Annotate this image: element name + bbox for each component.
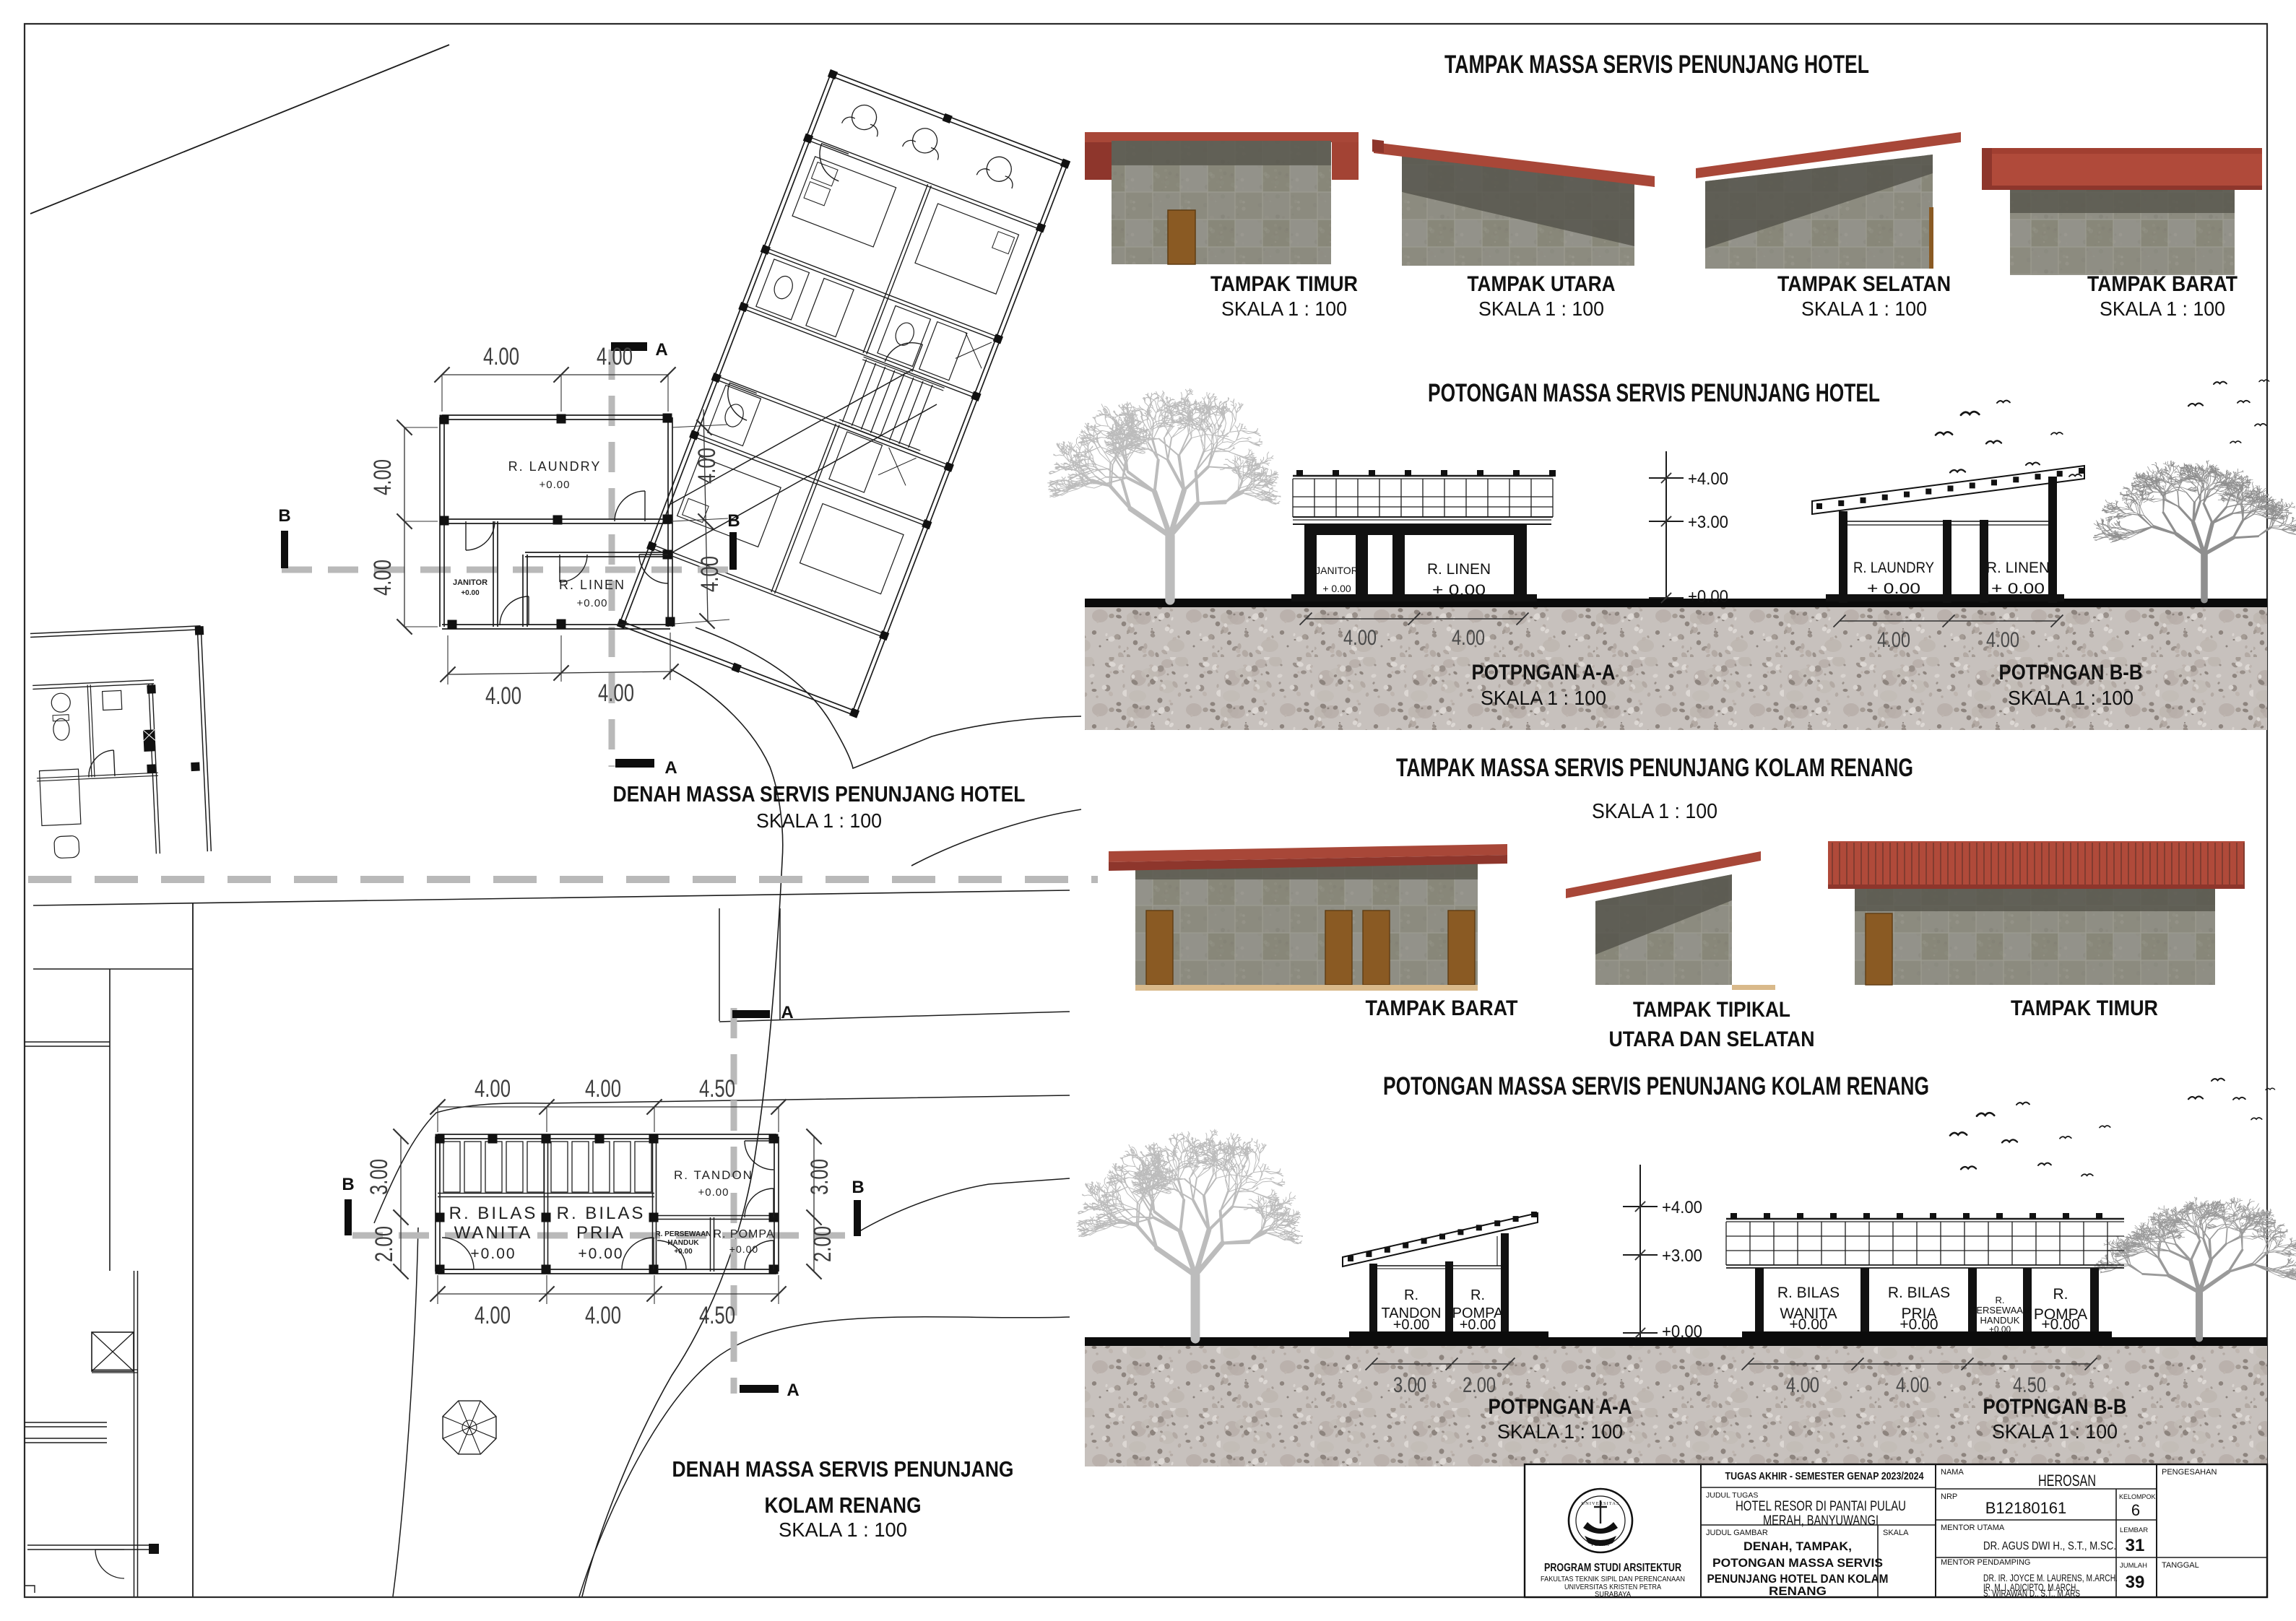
svg-text:SKALA 1 : 100: SKALA 1 : 100 — [2100, 297, 2225, 320]
svg-text:TAMPAK TIPIKAL: TAMPAK TIPIKAL — [1633, 998, 1790, 1022]
svg-text:SKALA 1 : 100: SKALA 1 : 100 — [779, 1518, 907, 1541]
svg-text:B: B — [342, 1175, 354, 1194]
svg-text:+3.00: +3.00 — [1662, 1246, 1702, 1266]
svg-text:HOTEL RESOR DI PANTAI PULAU: HOTEL RESOR DI PANTAI PULAU — [1736, 1498, 1906, 1514]
svg-text:PETRA: PETRA — [1591, 1542, 1610, 1547]
svg-text:+0.00: +0.00 — [729, 1243, 758, 1255]
svg-text:4.00: 4.00 — [1877, 628, 1910, 652]
svg-text:DR. AGUS DWI H., S.T., M.SC.: DR. AGUS DWI H., S.T., M.SC. — [1983, 1540, 2116, 1552]
svg-text:JUDUL GAMBAR: JUDUL GAMBAR — [1706, 1529, 1768, 1537]
svg-text:+0.00: +0.00 — [1789, 1316, 1827, 1333]
svg-text:R.: R. — [2053, 1286, 2068, 1303]
svg-text:4.00: 4.00 — [1896, 1373, 1929, 1397]
svg-text:HEROSAN: HEROSAN — [2038, 1472, 2096, 1490]
svg-text:4.50: 4.50 — [699, 1075, 735, 1103]
svg-text:4.00: 4.00 — [585, 1075, 621, 1103]
svg-text:SKALA 1 : 100: SKALA 1 : 100 — [756, 809, 882, 832]
svg-text:POTONGAN MASSA SERVIS: POTONGAN MASSA SERVIS — [1712, 1557, 1883, 1570]
svg-text:R. LAUNDRY: R. LAUNDRY — [508, 459, 602, 474]
svg-text:PROGRAM STUDI ARSITEKTUR: PROGRAM STUDI ARSITEKTUR — [1544, 1562, 1681, 1574]
svg-text:TAMPAK SELATAN: TAMPAK SELATAN — [1777, 272, 1951, 296]
svg-text:+3.00: +3.00 — [1688, 513, 1728, 532]
svg-text:+ 0.00: + 0.00 — [1322, 583, 1351, 594]
svg-text:RENANG: RENANG — [1769, 1585, 1827, 1598]
svg-text:SKALA 1 : 100: SKALA 1 : 100 — [1801, 297, 1927, 320]
svg-text:B: B — [727, 511, 740, 531]
svg-text:POTONGAN MASSA SERVIS PENUNJAN: POTONGAN MASSA SERVIS PENUNJANG KOLAM RE… — [1383, 1072, 1929, 1100]
svg-text:4.00: 4.00 — [1343, 626, 1377, 650]
svg-text:+0.00: +0.00 — [698, 1186, 729, 1199]
svg-text:TUGAS AKHIR - SEMESTER GENAP 2: TUGAS AKHIR - SEMESTER GENAP 2023/2024 — [1725, 1471, 1924, 1482]
svg-text:+0.00: +0.00 — [674, 1248, 693, 1256]
svg-text:4.00: 4.00 — [598, 679, 634, 707]
svg-text:3.00: 3.00 — [806, 1159, 833, 1195]
svg-text:SKALA 1 : 100: SKALA 1 : 100 — [1481, 687, 1606, 709]
svg-text:JUMLAH: JUMLAH — [2120, 1562, 2147, 1570]
svg-text:TAMPAK TIMUR: TAMPAK TIMUR — [1210, 272, 1358, 296]
svg-text:3.00: 3.00 — [365, 1159, 393, 1195]
svg-text:4.00: 4.00 — [696, 556, 724, 592]
svg-text:POTONGAN MASSA SERVIS PENUNJAN: POTONGAN MASSA SERVIS PENUNJANG HOTEL — [1428, 379, 1880, 407]
svg-text:R. LINEN: R. LINEN — [1986, 560, 2050, 576]
svg-text:JANITOR: JANITOR — [453, 578, 488, 587]
svg-text:B: B — [852, 1178, 864, 1197]
svg-text:A: A — [664, 758, 677, 778]
svg-text:4.00: 4.00 — [693, 448, 721, 484]
svg-text:+0.00: +0.00 — [1662, 1322, 1702, 1342]
svg-text:4.00: 4.00 — [475, 1302, 511, 1329]
svg-text:A: A — [787, 1381, 799, 1400]
svg-text:2.00: 2.00 — [809, 1226, 836, 1262]
svg-text:+0.00: +0.00 — [2041, 1316, 2079, 1333]
svg-text:+0.00: +0.00 — [470, 1246, 516, 1262]
svg-text:4.00: 4.00 — [369, 560, 397, 596]
svg-text:SKALA 1 : 100: SKALA 1 : 100 — [2008, 687, 2133, 709]
svg-text:+4.00: +4.00 — [1662, 1198, 1702, 1217]
svg-text:KELOMPOK: KELOMPOK — [2119, 1493, 2156, 1500]
svg-text:31: 31 — [2126, 1536, 2145, 1555]
svg-text:4.00: 4.00 — [597, 343, 633, 370]
svg-text:SKALA: SKALA — [1883, 1529, 1909, 1537]
svg-text:4.00: 4.00 — [485, 682, 521, 710]
svg-text:+0.00: +0.00 — [578, 1246, 623, 1262]
svg-text:TAMPAK UTARA: TAMPAK UTARA — [1468, 272, 1616, 296]
svg-text:POTPNGAN A-A: POTPNGAN A-A — [1489, 1395, 1632, 1419]
svg-text:JANITOR: JANITOR — [1315, 565, 1359, 576]
svg-text:R. BILAS: R. BILAS — [557, 1204, 646, 1223]
svg-text:4.00: 4.00 — [585, 1302, 621, 1329]
svg-text:SKALA 1 : 100: SKALA 1 : 100 — [1992, 1420, 2118, 1443]
svg-text:MENTOR UTAMA: MENTOR UTAMA — [1941, 1524, 2005, 1532]
svg-text:POTPNGAN B-B: POTPNGAN B-B — [1999, 661, 2143, 685]
svg-text:39: 39 — [2126, 1573, 2145, 1592]
svg-text:DENAH MASSA SERVIS PENUNJANG: DENAH MASSA SERVIS PENUNJANG — [672, 1456, 1014, 1482]
svg-text:R. PERSEWAAN: R. PERSEWAAN — [655, 1230, 711, 1238]
svg-text:POTPNGAN A-A: POTPNGAN A-A — [1472, 661, 1616, 685]
svg-text:6: 6 — [2131, 1501, 2140, 1519]
svg-text:SKALA 1 : 100: SKALA 1 : 100 — [1478, 297, 1604, 320]
svg-text:FAKULTAS TEKNIK SIPIL DAN PERE: FAKULTAS TEKNIK SIPIL DAN PERENCANAAN — [1541, 1576, 1685, 1583]
svg-text:2.00: 2.00 — [1463, 1373, 1496, 1397]
svg-text:DENAH MASSA SERVIS PENUNJANG H: DENAH MASSA SERVIS PENUNJANG HOTEL — [613, 781, 1026, 807]
svg-text:S. WIRAWAN D., S.T., M.ARS: S. WIRAWAN D., S.T., M.ARS — [1983, 1588, 2080, 1599]
svg-text:LEMBAR: LEMBAR — [2120, 1526, 2148, 1534]
svg-text:R. BILAS: R. BILAS — [449, 1204, 538, 1223]
svg-text:TANGGAL: TANGGAL — [2162, 1561, 2199, 1570]
svg-text:2.00: 2.00 — [371, 1226, 398, 1262]
svg-text:TAMPAK MASSA SERVIS PENUNJANG: TAMPAK MASSA SERVIS PENUNJANG KOLAM RENA… — [1396, 754, 1913, 782]
svg-text:3.00: 3.00 — [1393, 1373, 1426, 1397]
svg-text:UNIVERSITAS: UNIVERSITAS — [1581, 1501, 1619, 1506]
svg-text:POTPNGAN B-B: POTPNGAN B-B — [1983, 1395, 2127, 1419]
svg-text:R. LAUNDRY: R. LAUNDRY — [1853, 560, 1934, 576]
svg-text:TAMPAK BARAT: TAMPAK BARAT — [2087, 272, 2237, 296]
svg-text:4.00: 4.00 — [1986, 628, 2019, 652]
svg-text:A: A — [655, 340, 667, 360]
svg-text:4.00: 4.00 — [475, 1075, 511, 1103]
svg-text:TAMPAK BARAT: TAMPAK BARAT — [1366, 996, 1518, 1020]
svg-text:+4.00: +4.00 — [1688, 469, 1728, 489]
svg-text:+0.00: +0.00 — [1460, 1317, 1496, 1333]
svg-text:+0.00: +0.00 — [1688, 587, 1728, 607]
svg-text:4.00: 4.00 — [483, 343, 519, 370]
svg-text:UTARA DAN SELATAN: UTARA DAN SELATAN — [1609, 1027, 1815, 1051]
svg-text:SKALA 1 : 100: SKALA 1 : 100 — [1221, 297, 1347, 320]
svg-text:4.00: 4.00 — [1452, 626, 1485, 650]
svg-text:NRP: NRP — [1941, 1492, 1957, 1501]
svg-text:SKALA 1 : 100: SKALA 1 : 100 — [1497, 1420, 1623, 1443]
svg-text:+0.00: +0.00 — [1899, 1316, 1938, 1333]
svg-text:R. BILAS: R. BILAS — [1888, 1285, 1950, 1301]
svg-text:+0.00: +0.00 — [1393, 1317, 1430, 1333]
svg-text:R. TANDON: R. TANDON — [674, 1168, 753, 1182]
svg-text:PENGESAHAN: PENGESAHAN — [2162, 1468, 2217, 1477]
svg-text:R.: R. — [1470, 1287, 1485, 1303]
svg-text:R.: R. — [1404, 1287, 1418, 1303]
svg-text:KOLAM RENANG: KOLAM RENANG — [765, 1492, 922, 1518]
svg-text:+0.00: +0.00 — [577, 597, 608, 609]
svg-text:4.50: 4.50 — [699, 1302, 735, 1329]
svg-text:PRIA: PRIA — [576, 1223, 625, 1243]
svg-text:MERAH, BANYUWANGI: MERAH, BANYUWANGI — [1763, 1513, 1879, 1529]
svg-text:SURABAYA: SURABAYA — [1595, 1591, 1631, 1599]
svg-text:B12180161: B12180161 — [1985, 1499, 2067, 1517]
svg-text:PERSEWAAN: PERSEWAAN — [1970, 1305, 2030, 1316]
svg-text:NAMA: NAMA — [1941, 1468, 1964, 1477]
svg-text:R.: R. — [1996, 1295, 2005, 1305]
svg-text:+0.00: +0.00 — [540, 479, 571, 491]
svg-text:TAMPAK MASSA SERVIS PENUNJANG: TAMPAK MASSA SERVIS PENUNJANG HOTEL — [1444, 51, 1869, 79]
svg-text:B: B — [278, 506, 290, 526]
svg-text:R. LINEN: R. LINEN — [1427, 561, 1491, 578]
svg-text:A: A — [781, 1003, 793, 1022]
svg-text:+0.00: +0.00 — [461, 589, 480, 597]
svg-text:R. LINEN: R. LINEN — [559, 578, 625, 592]
svg-text:4.50: 4.50 — [2013, 1373, 2046, 1397]
svg-text:MENTOR PENDAMPING: MENTOR PENDAMPING — [1941, 1558, 2030, 1567]
svg-text:4.00: 4.00 — [1786, 1373, 1819, 1397]
svg-text:PENUNJANG HOTEL DAN KOLAM: PENUNJANG HOTEL DAN KOLAM — [1707, 1573, 1889, 1586]
svg-text:DENAH, TAMPAK,: DENAH, TAMPAK, — [1743, 1540, 1852, 1553]
svg-text:WANITA: WANITA — [454, 1223, 533, 1243]
svg-text:R. POMPA: R. POMPA — [713, 1228, 774, 1240]
svg-text:SKALA 1 : 100: SKALA 1 : 100 — [1592, 800, 1717, 823]
svg-text:TAMPAK TIMUR: TAMPAK TIMUR — [2011, 996, 2158, 1020]
svg-text:4.00: 4.00 — [369, 459, 397, 495]
svg-text:R. BILAS: R. BILAS — [1777, 1285, 1840, 1301]
svg-text:HANDUK: HANDUK — [667, 1239, 699, 1247]
